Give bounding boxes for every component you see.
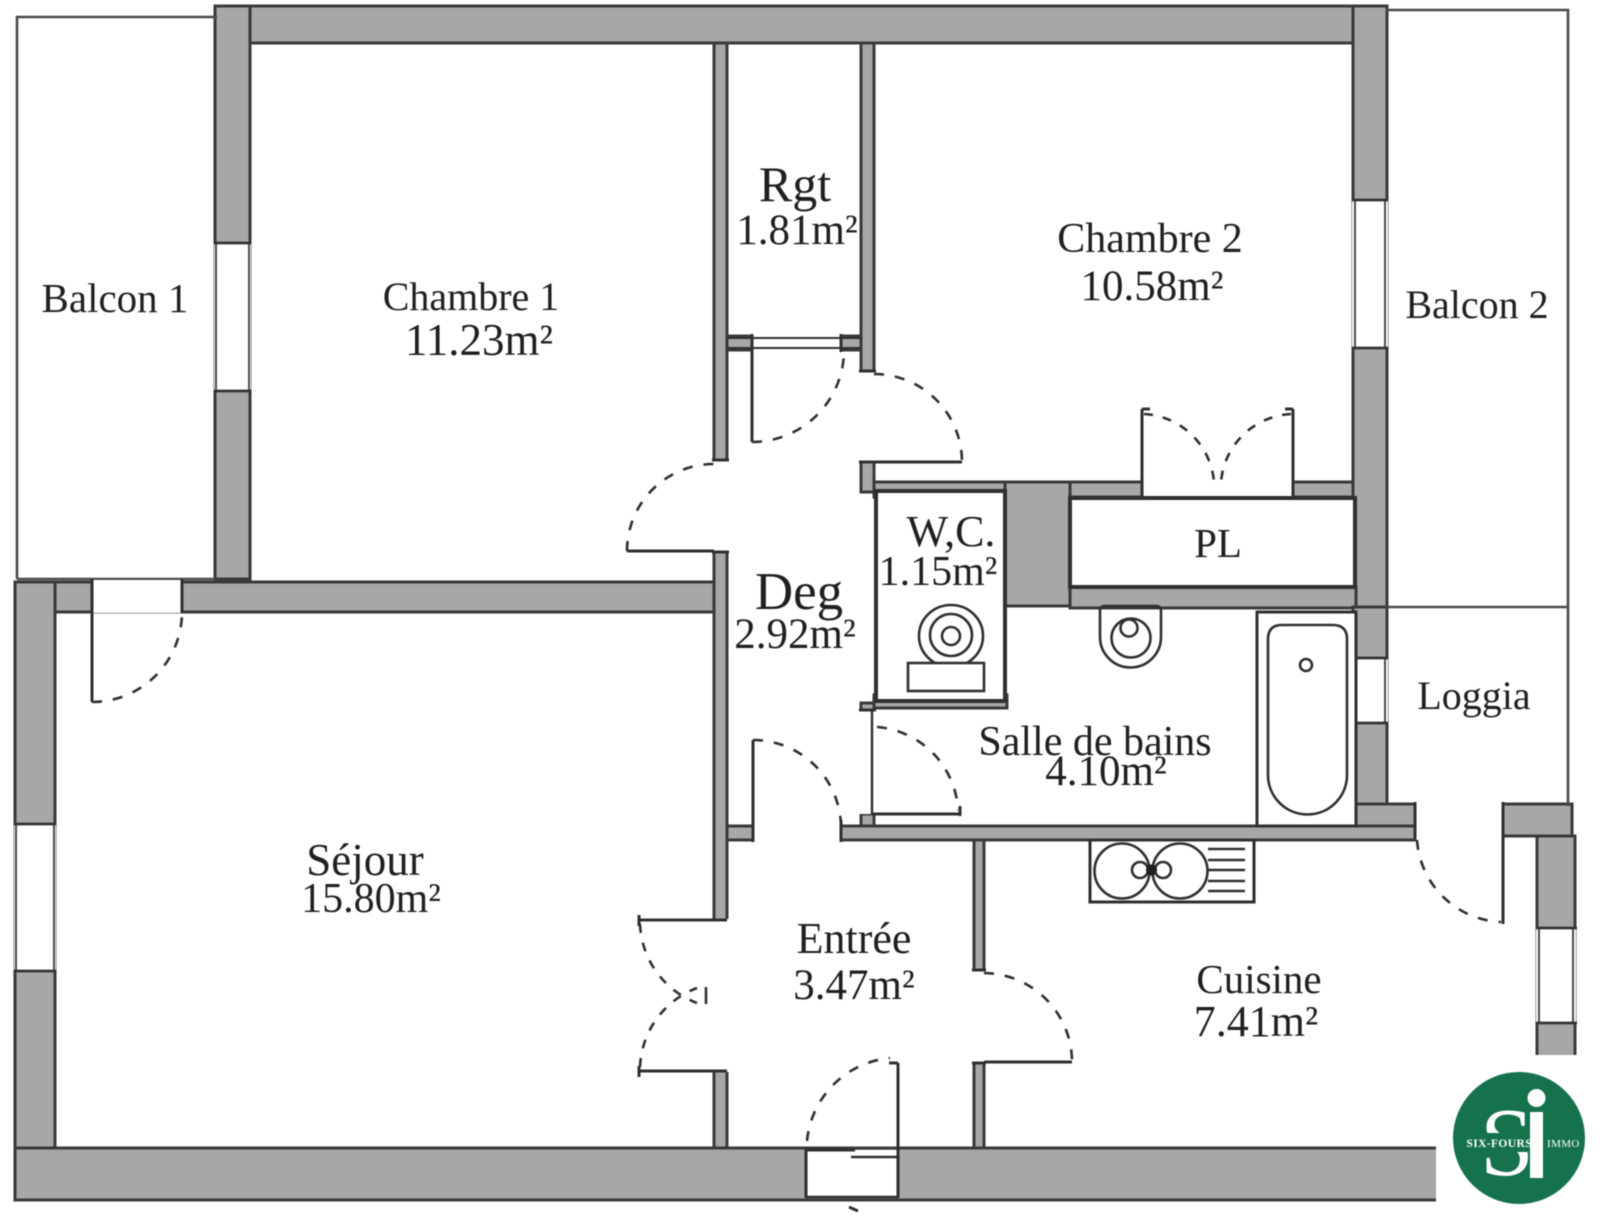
svg-text:1.81m²: 1.81m² (736, 207, 858, 254)
svg-text:11.23m²: 11.23m² (405, 315, 553, 365)
svg-text:15.80m²: 15.80m² (301, 876, 441, 922)
svg-text:PL: PL (1194, 520, 1242, 566)
svg-text:Chambre 1: Chambre 1 (383, 274, 560, 319)
svg-text:Entrée: Entrée (797, 914, 912, 963)
svg-text:Balcon 2: Balcon 2 (1405, 282, 1548, 327)
svg-text:10.58m²: 10.58m² (1080, 263, 1223, 310)
svg-text:Cuisine: Cuisine (1196, 956, 1321, 1002)
svg-text:Chambre 2: Chambre 2 (1057, 216, 1242, 262)
svg-text:3.47m²: 3.47m² (793, 962, 915, 1009)
svg-text:2.92m²: 2.92m² (734, 611, 856, 658)
svg-text:1.15m²: 1.15m² (879, 549, 998, 595)
svg-text:IMMO: IMMO (1547, 1138, 1580, 1150)
svg-text:4.10m²: 4.10m² (1045, 748, 1167, 795)
svg-text:Rgt: Rgt (759, 156, 831, 212)
svg-text:7.41m²: 7.41m² (1194, 997, 1318, 1046)
svg-text:Balcon 1: Balcon 1 (42, 275, 189, 321)
svg-text:SIX-FOURS: SIX-FOURS (1466, 1138, 1532, 1150)
svg-text:Loggia: Loggia (1417, 673, 1531, 718)
